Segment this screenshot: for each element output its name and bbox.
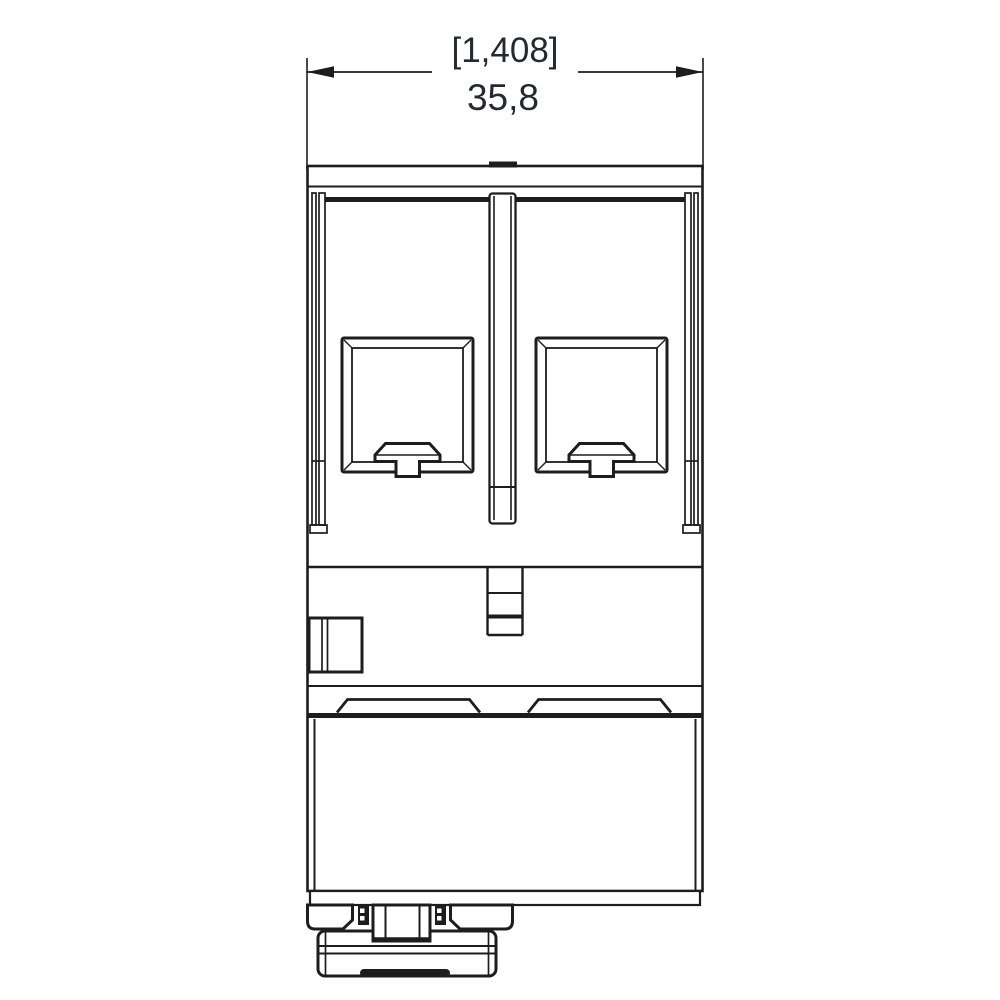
side-rail-left xyxy=(310,193,327,533)
device-outer-outline xyxy=(308,166,703,891)
top-center-tick xyxy=(489,162,517,168)
foot-bracket-left-notch-2 xyxy=(360,916,365,921)
foot-bracket-right-notch-1 xyxy=(437,909,442,914)
width-dimension-annotation: [1,408] 35,8 xyxy=(307,31,703,170)
dimension-reference-value: [1,408] xyxy=(451,31,558,70)
drawing-page: [1,408] 35,8 xyxy=(0,0,1000,1000)
din-rail-foot-assembly xyxy=(308,905,513,976)
base-plate xyxy=(310,891,700,905)
foot-center-post-outline xyxy=(373,905,430,941)
foot-bracket-right xyxy=(435,905,446,925)
foot-bracket-right-body xyxy=(435,905,446,925)
side-rail-right xyxy=(683,193,700,533)
foot-center-post xyxy=(373,905,430,941)
foot-bracket-left-body xyxy=(358,905,369,925)
device-body xyxy=(308,162,703,906)
technical-drawing-canvas: [1,408] 35,8 xyxy=(0,0,1000,1000)
foot-bracket-right-notch-2 xyxy=(437,916,442,921)
foot-bracket-left-notch-1 xyxy=(360,909,365,914)
dimension-metric-value: 35,8 xyxy=(467,77,539,118)
foot-bracket-left xyxy=(358,905,369,925)
foot-block-right xyxy=(451,905,513,929)
dimension-arrow-left-icon xyxy=(307,66,334,78)
foot-block-left xyxy=(308,905,353,929)
dimension-arrow-right-icon xyxy=(676,66,703,78)
